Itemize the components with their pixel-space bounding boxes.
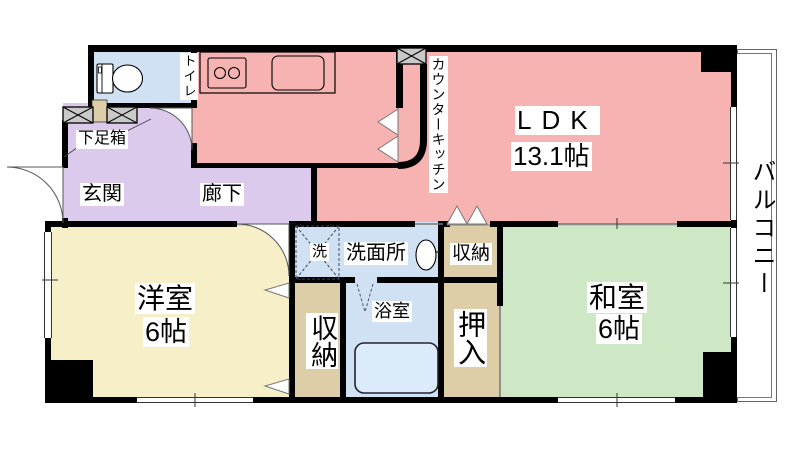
wall [289,221,295,397]
window [44,232,52,338]
wall [253,397,558,403]
corner-pillar [701,45,737,72]
wall [88,45,737,52]
wall [45,397,137,403]
corner-pillar [703,352,737,403]
entrance-label: 玄関 [80,183,124,206]
hallway-label: 廊下 [200,183,244,206]
door-arc-icon [7,167,63,223]
wall [443,221,450,227]
wall [311,163,317,226]
storage-lower-label: 収納 [306,313,338,369]
wall [438,221,444,282]
wall [191,163,402,168]
wall [340,282,346,397]
wall [88,103,192,108]
wall [45,221,237,227]
japanese-room-label: 和室 [587,282,647,313]
wall [289,221,415,227]
wall [731,220,737,228]
washer-label: 洗 [310,243,329,261]
floor-plan: トイレ 下足箱 玄関 廊下 カウンターキッチン LDK 13.1帖 バルコニー … [0,0,800,450]
counter-kitchen-label: カウンターキッチン [429,56,448,193]
wall [62,120,68,168]
bathroom-floor [343,282,443,397]
corner-pillar [45,360,93,400]
storage-upper-label: 収納 [450,243,492,265]
washroom-label: 洗面所 [344,242,408,265]
entrance-floor [63,103,192,226]
window [558,397,675,403]
western-room-label: 洋室 [135,283,195,314]
wall [396,51,403,108]
shoe-box-label: 下足箱 [76,130,128,149]
japanese-size-label: 6帖 [596,314,642,344]
wall [497,221,503,306]
window [730,228,737,337]
balcony-label: バルコニー [746,158,775,300]
oshiire-label: 押入 [454,309,487,367]
window [730,107,737,220]
wall [88,45,94,108]
wall [438,282,444,397]
toilet-label: トイレ [180,53,198,100]
wall [677,221,737,227]
western-size-label: 6帖 [143,317,189,347]
bathroom-label: 浴室 [372,301,412,322]
window [137,397,253,403]
ldk-label: LDK [515,106,600,135]
wall [45,221,51,232]
ldk-size-label: 13.1帖 [511,142,592,171]
